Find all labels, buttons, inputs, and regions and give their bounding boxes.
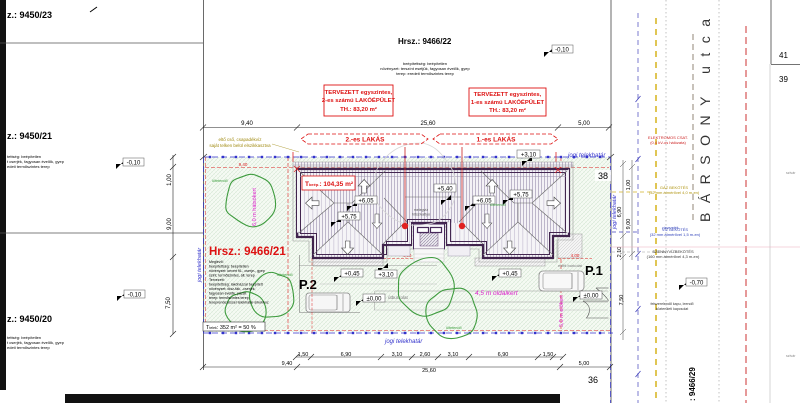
svg-text:eltő cső, csapadékvíz: eltő cső, csapadékvíz — [218, 137, 262, 142]
svg-text:+0,45: +0,45 — [502, 272, 518, 278]
svg-text:z.: 9450/20: z.: 9450/20 — [7, 314, 52, 324]
svg-text:6,0 m hátsókert: 6,0 m hátsókert — [252, 188, 258, 226]
svg-text:ültetendő: ültetendő — [490, 203, 506, 207]
svg-text:P.2: P.2 — [299, 277, 317, 292]
svg-text:9,00: 9,00 — [626, 219, 632, 230]
svg-text:+0,45: +0,45 — [344, 272, 360, 278]
svg-text:1,50: 1,50 — [298, 352, 309, 358]
svg-text:melegvíz: melegvíz — [414, 208, 429, 212]
svg-text:növényzet: kevert fű-, cserje-: növényzet: kevert fű-, cserje-, gyep — [209, 269, 265, 273]
svg-text:3,10: 3,10 — [448, 352, 459, 358]
svg-text:6,90: 6,90 — [498, 352, 509, 358]
svg-text:-0,10: -0,10 — [127, 161, 141, 167]
svg-text:5,0 m előkert: 5,0 m előkert — [559, 295, 565, 327]
svg-text:-0,70: -0,70 — [690, 281, 704, 287]
svg-text:2-es számú LAKÓÉPÜLET: 2-es számú LAKÓÉPÜLET — [322, 96, 396, 104]
svg-text:+3,10: +3,10 — [378, 273, 394, 279]
svg-text:+5,75: +5,75 — [341, 215, 357, 221]
svg-text:1,00: 1,00 — [626, 180, 632, 191]
svg-text:terep: eredeti termőszintes te: terep: eredeti termőszintes terep — [396, 71, 454, 76]
svg-text:2,60: 2,60 — [420, 352, 431, 358]
svg-text:felszerelendő kapu, leendő: felszerelendő kapu, leendő — [651, 302, 694, 306]
svg-text:beépítettség: beépítetlen: beépítettség: beépítetlen — [209, 265, 249, 269]
svg-text:25,60: 25,60 — [420, 121, 436, 127]
svg-text:+5,75: +5,75 — [513, 193, 529, 199]
svg-text:TERVEZETT egyszintes,: TERVEZETT egyszintes, — [474, 92, 542, 98]
svg-text:9,40: 9,40 — [241, 121, 253, 127]
svg-text:7,50: 7,50 — [619, 295, 625, 306]
svg-text:+3,10: +3,10 — [521, 153, 537, 159]
svg-text:7,50: 7,50 — [166, 297, 172, 309]
svg-text:Tervezett:: Tervezett: — [209, 278, 225, 282]
svg-text:növényzet: dísz-fák, -cserjék,: növényzet: dísz-fák, -cserjék, — [209, 287, 256, 291]
svg-text:39: 39 — [779, 75, 788, 84]
svg-text:közterületi kapcsolat: közterületi kapcsolat — [656, 307, 689, 311]
svg-text:5,00: 5,00 — [578, 121, 590, 127]
svg-text:ültetendő: ültetendő — [277, 273, 293, 277]
svg-text:4,5 m oldalkert: 4,5 m oldalkert — [475, 290, 519, 297]
svg-text:szint; termőszintes, ált. tere: szint; termőszintes, ált. terep — [209, 274, 255, 278]
svg-text:TH.: 83,20 m²: TH.: 83,20 m² — [489, 107, 526, 114]
svg-text:1-es számú LAKÓÉPÜLET: 1-es számú LAKÓÉPÜLET — [471, 98, 545, 106]
svg-text:előtti burkolat: előtti burkolat — [558, 263, 583, 268]
svg-text:±0,00: ±0,00 — [367, 297, 383, 303]
svg-text:36: 36 — [588, 375, 598, 385]
svg-text:szivár: szivár — [786, 171, 796, 175]
svg-text:jogi telekhatár: jogi telekhatár — [567, 153, 606, 159]
svg-text:6,90: 6,90 — [341, 352, 352, 358]
svg-text:9,40: 9,40 — [282, 361, 293, 367]
svg-text:±0,00: ±0,00 — [584, 294, 600, 300]
svg-text:2.-es LAKÁS: 2.-es LAKÁS — [345, 135, 385, 144]
svg-text:szivár: szivár — [786, 354, 796, 358]
svg-text:9,00: 9,00 — [167, 218, 173, 230]
svg-text:TH.: 83,20 m²: TH.: 83,20 m² — [340, 106, 377, 113]
svg-text:5,00: 5,00 — [579, 361, 590, 367]
svg-text:1,50: 1,50 — [543, 352, 554, 358]
svg-text:25,60: 25,60 — [422, 368, 436, 374]
svg-text:fagyosan évelők, pázsit: fagyosan évelők, pázsit — [209, 292, 246, 296]
svg-text:4,00: 4,00 — [571, 253, 580, 258]
svg-text:beépítettség: lakóházzal beépí: beépítettség: lakóházzal beépített — [209, 283, 263, 287]
svg-text:jogi telekhatár: jogi telekhatár — [197, 247, 203, 283]
svg-text:z.: 9450/23: z.: 9450/23 — [7, 10, 52, 20]
svg-text:(32 mm átmérővel 1,5 m-en): (32 mm átmérővel 1,5 m-en) — [650, 232, 701, 237]
svg-text:Tbeép.: 104,35 m²: Tbeép.: 104,35 m² — [305, 181, 354, 188]
svg-text:z.: 9450/21: z.: 9450/21 — [7, 131, 52, 141]
svg-text:edeti termőszintes terep: edeti termőszintes terep — [7, 345, 50, 350]
svg-text:edeti termőszintes terep: edeti termőszintes terep — [7, 164, 50, 169]
svg-text:-0,10: -0,10 — [128, 293, 142, 299]
svg-text:terep: termőszintes terep,: terep: termőszintes terep, — [209, 296, 250, 300]
svg-text:41: 41 — [779, 51, 788, 60]
svg-text:: 9466/29: : 9466/29 — [688, 367, 697, 401]
svg-text:1.-es LAKÁS: 1.-es LAKÁS — [476, 135, 516, 144]
svg-text:TERVEZETT egyszintes,: TERVEZETT egyszintes, — [325, 90, 393, 96]
svg-text:6,90: 6,90 — [617, 207, 623, 218]
svg-text:(32 mm átmérővel 4,0 m-en): (32 mm átmérővel 4,0 m-en) — [649, 190, 700, 195]
svg-text:hőszivattyú: hőszivattyú — [412, 213, 430, 217]
svg-text:P.1: P.1 — [585, 263, 603, 278]
svg-text:(0,4 kV-os hálózata): (0,4 kV-os hálózata) — [650, 140, 686, 145]
svg-text:jogi telekhatár: jogi telekhatár — [384, 339, 423, 345]
svg-text:(160 mm átmérővel 4,3 m-en): (160 mm átmérővel 4,3 m-en) — [647, 254, 700, 259]
svg-text:tereprendezéssel telekhatár-sí: tereprendezéssel telekhatár-síkokhoz — [209, 301, 269, 305]
svg-text:Hrsz.: 9466/21: Hrsz.: 9466/21 — [209, 246, 286, 258]
svg-text:Hrsz.: 9466/22: Hrsz.: 9466/22 — [398, 37, 452, 46]
svg-text:ültetendő: ültetendő — [446, 326, 462, 330]
svg-text:1,00: 1,00 — [167, 174, 173, 186]
svg-text:38: 38 — [598, 171, 608, 181]
svg-text:Meglévő:: Meglévő: — [209, 260, 224, 264]
svg-text:ültetendő: ültetendő — [212, 179, 228, 183]
svg-text:vízvezeték: vízvezeték — [662, 226, 679, 230]
svg-text:saját telken belül elszikkaszt: saját telken belül elszikkasztva — [209, 143, 271, 148]
svg-text:3,10: 3,10 — [392, 352, 403, 358]
svg-text:9,40: 9,40 — [239, 162, 248, 167]
svg-text:-0,10: -0,10 — [555, 48, 569, 54]
svg-text:BÁRSONY utca: BÁRSONY utca — [697, 9, 713, 222]
svg-text:+5,40: +5,40 — [437, 187, 453, 193]
svg-text:+6,05: +6,05 — [358, 199, 374, 205]
